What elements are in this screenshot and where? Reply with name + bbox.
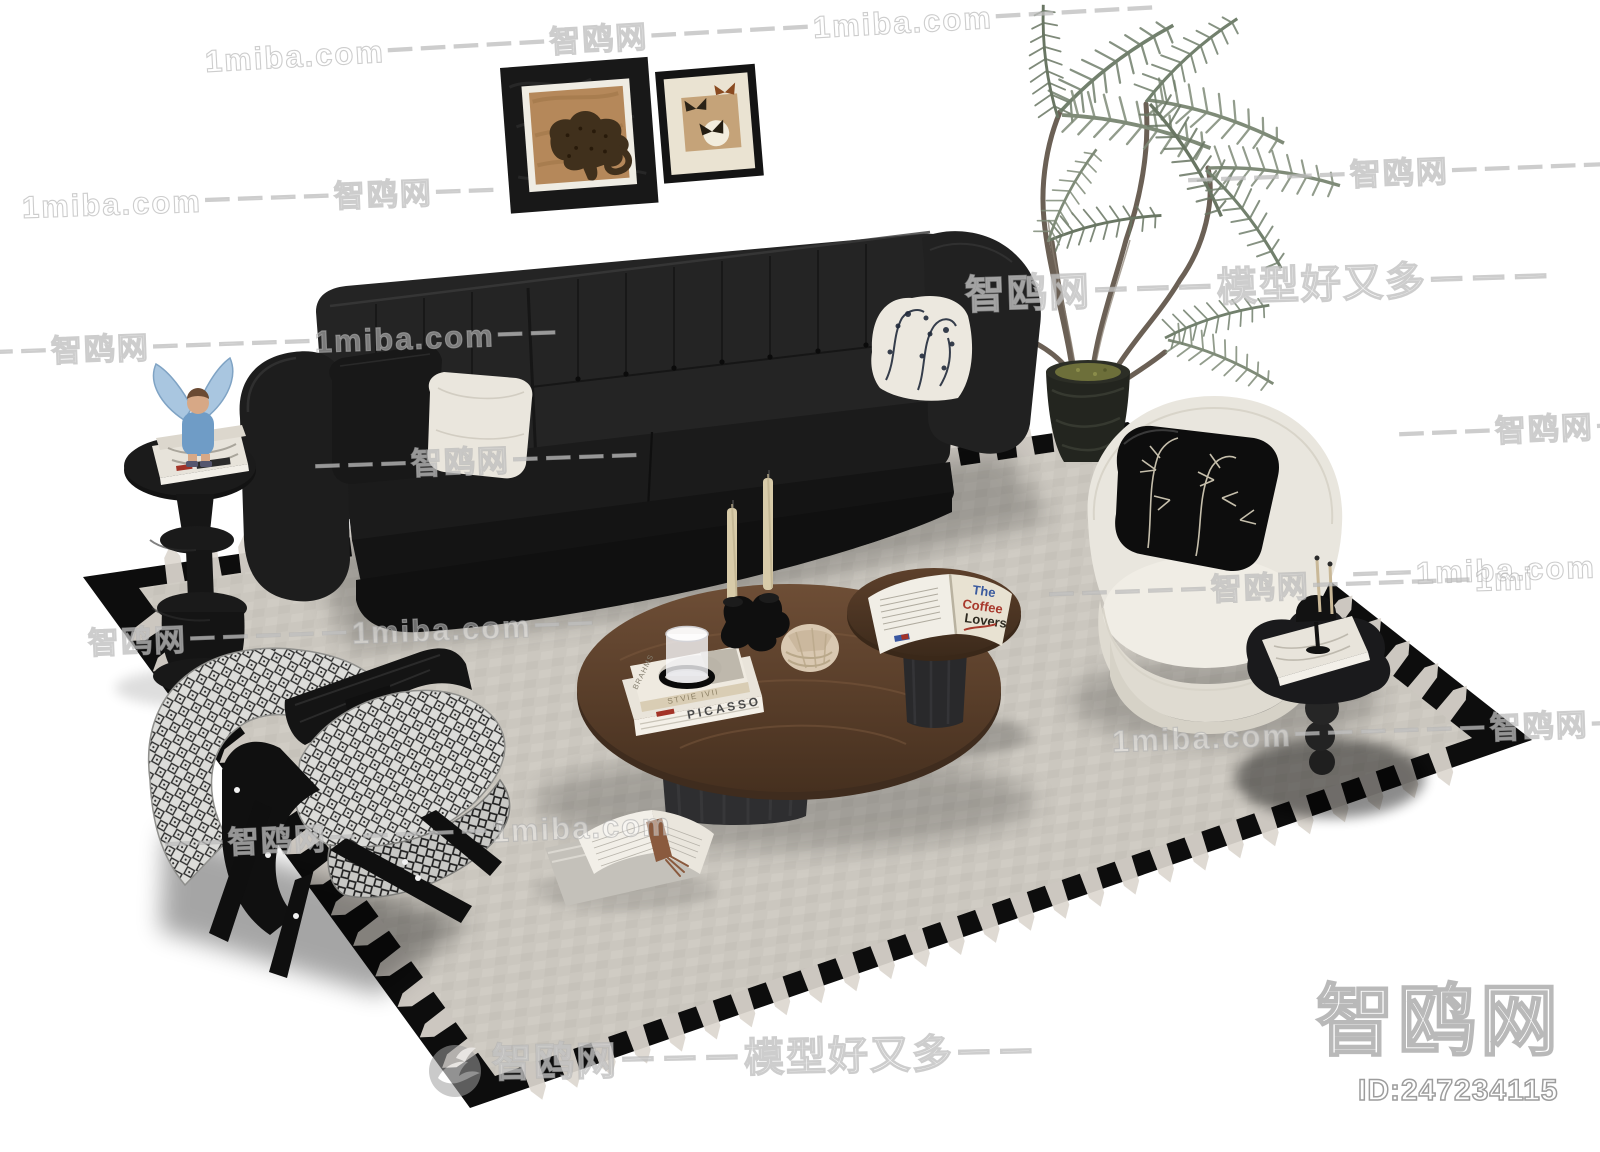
armchair-pillow-bamboo <box>1115 426 1279 571</box>
seagull-logo-icon <box>428 1044 482 1098</box>
woven-basket <box>781 624 839 672</box>
sofa-pillow-white <box>428 372 533 478</box>
glass-candle-cup <box>662 627 712 687</box>
wall-art-frame-leopard <box>500 57 659 214</box>
render-canvas: PICASSO STVIE IVII BRAHMS <box>0 0 1600 1152</box>
sofa-pillow-floral <box>871 296 972 401</box>
wall-art-frame-butterflies <box>655 64 764 184</box>
scene-render: PICASSO STVIE IVII BRAHMS <box>0 0 1600 1152</box>
sofa-pillow-black <box>329 346 442 484</box>
